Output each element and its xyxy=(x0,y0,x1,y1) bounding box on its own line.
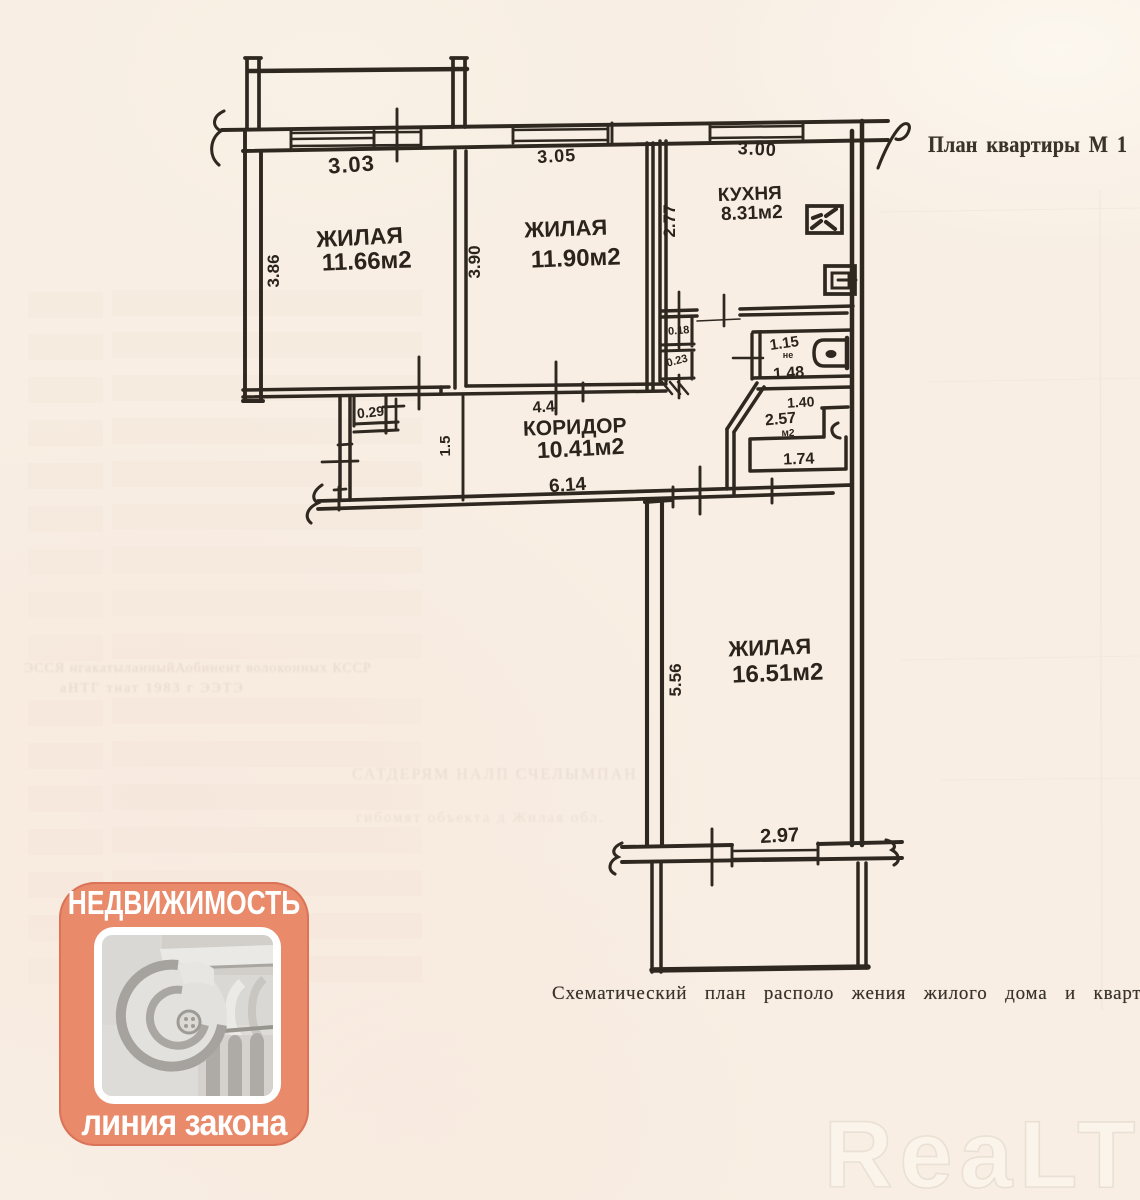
svg-text:ReaLT: ReaLT xyxy=(824,1102,1140,1200)
